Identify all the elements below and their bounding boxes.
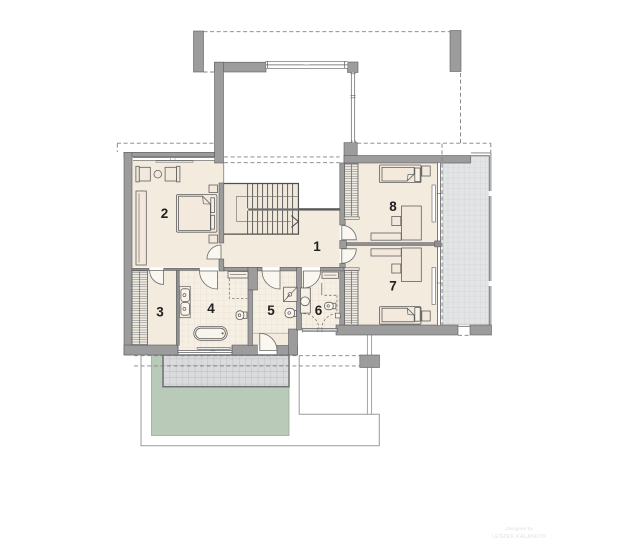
svg-text:2: 2 bbox=[161, 206, 169, 221]
svg-text:5: 5 bbox=[267, 303, 275, 318]
svg-text:4: 4 bbox=[207, 301, 215, 316]
svg-text:7: 7 bbox=[389, 279, 397, 294]
svg-text:6: 6 bbox=[315, 303, 323, 318]
svg-text:8: 8 bbox=[389, 199, 397, 214]
svg-text:1: 1 bbox=[313, 239, 321, 254]
svg-text:Designed by: Designed by bbox=[506, 526, 533, 532]
svg-text:LESZEK KALANDYK: LESZEK KALANDYK bbox=[492, 534, 547, 540]
svg-text:3: 3 bbox=[156, 305, 164, 320]
